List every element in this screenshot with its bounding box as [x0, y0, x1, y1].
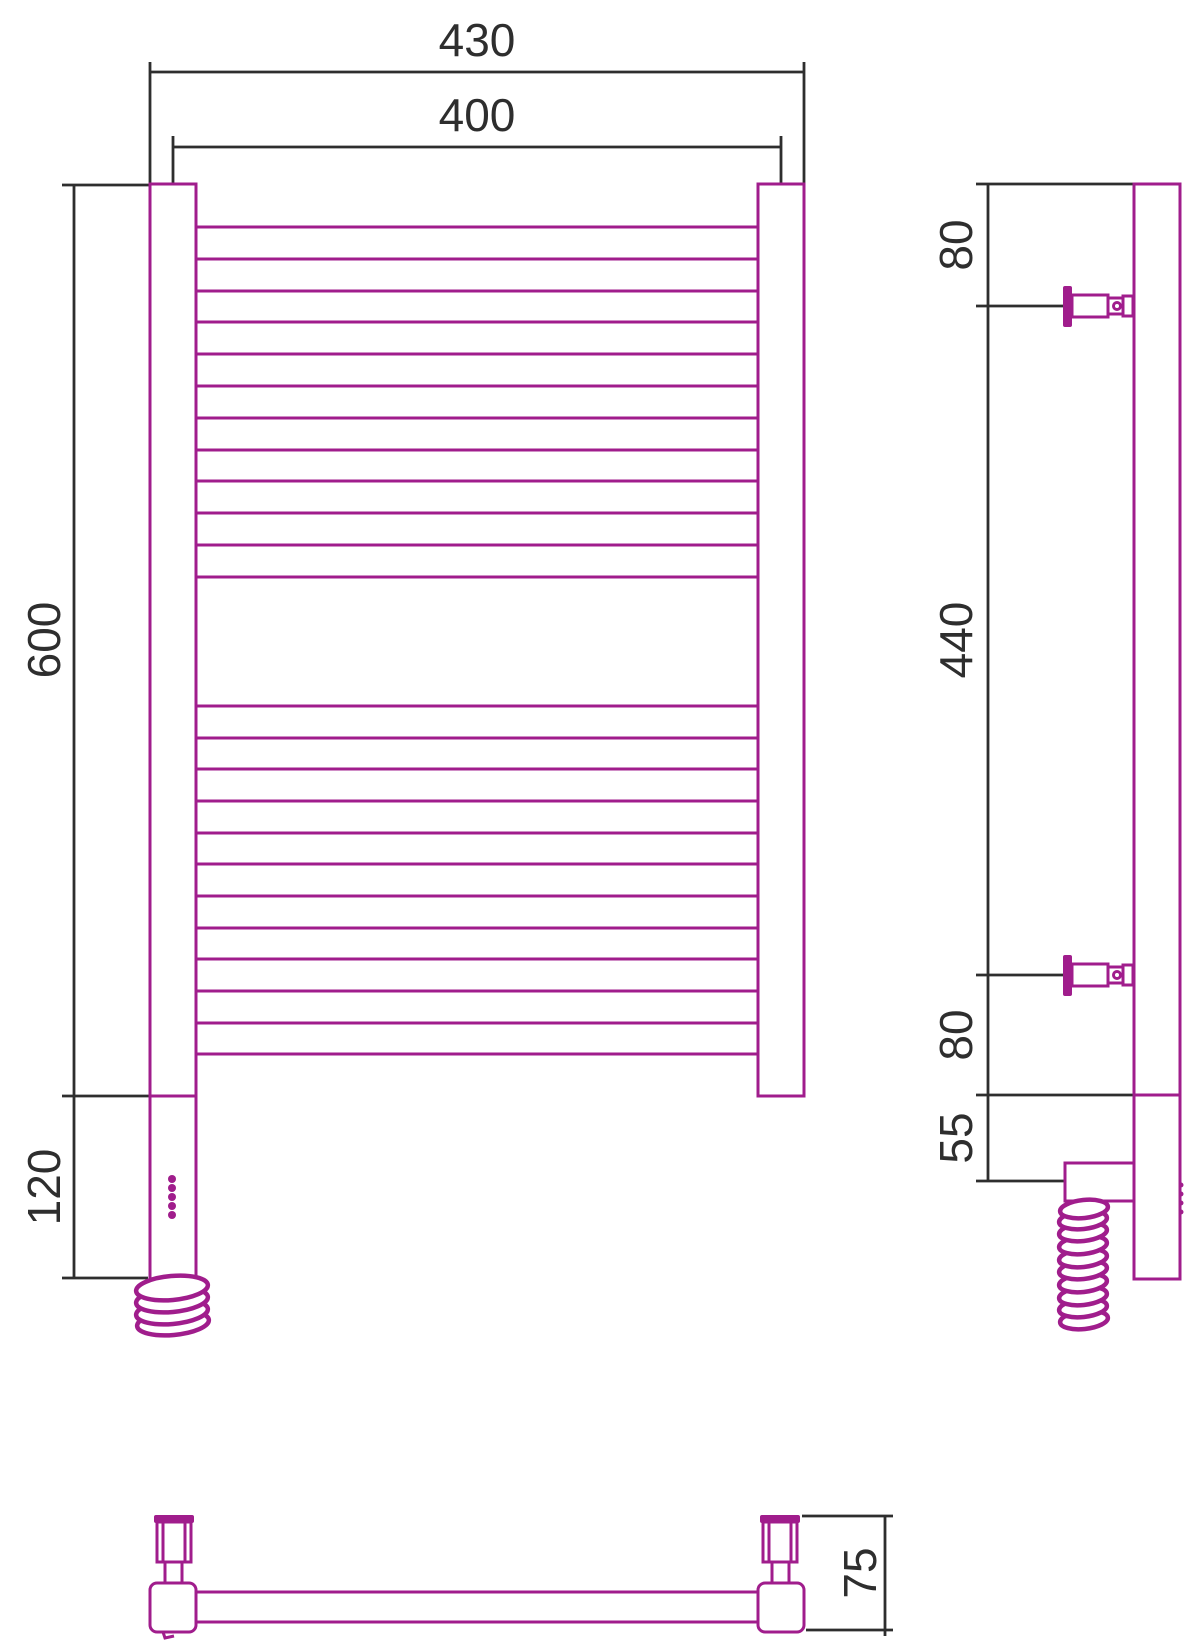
right-post — [758, 184, 804, 1096]
left-post — [150, 184, 196, 1279]
dim-label-120: 120 — [18, 1149, 70, 1226]
front-view — [135, 184, 804, 1338]
dim-label-55: 55 — [930, 1112, 982, 1163]
post-block — [150, 1583, 196, 1632]
dim-label-430: 430 — [439, 14, 516, 66]
mark — [1179, 1183, 1184, 1188]
power-indicator-dots — [168, 1175, 176, 1219]
dim-label-440: 440 — [930, 602, 982, 679]
mark — [1179, 1201, 1184, 1206]
towel-rail-technical-drawing: 430 400 600 120 — [0, 0, 1200, 1651]
dim-label-80-top: 80 — [930, 219, 982, 270]
dim-label-80-bottom: 80 — [930, 1009, 982, 1060]
bracket-body — [1072, 964, 1108, 986]
plan-bracket-right — [758, 1515, 804, 1632]
mark — [1179, 1192, 1184, 1197]
plan-bracket-left — [150, 1515, 196, 1638]
cable-coil-side — [1058, 1198, 1109, 1332]
dim-label-400: 400 — [439, 89, 516, 141]
dim-label-75: 75 — [834, 1547, 886, 1598]
bottom-view: 75 — [150, 1515, 893, 1638]
bracket-neck — [165, 1562, 182, 1583]
bracket-neck — [772, 1562, 789, 1583]
dot — [168, 1175, 176, 1183]
bottom-dim-depth: 75 — [802, 1516, 893, 1636]
front-dim-height: 600 120 — [18, 185, 150, 1278]
dot — [168, 1202, 176, 1210]
drawing-sheet: 430 400 600 120 — [0, 0, 1200, 1651]
mark — [1179, 1210, 1184, 1215]
cable-coil-front — [135, 1273, 210, 1338]
bracket-collar — [1123, 296, 1133, 316]
side-dims: 80 440 80 55 — [930, 184, 1134, 1181]
bracket-collar — [1123, 965, 1133, 985]
side-view — [1058, 184, 1183, 1331]
post-block — [758, 1583, 804, 1632]
dot — [168, 1184, 176, 1192]
dim-label-600: 600 — [18, 602, 70, 679]
heater-housing-side — [1065, 1163, 1134, 1201]
post-profile — [1134, 184, 1180, 1279]
dot — [168, 1193, 176, 1201]
wall-bracket-bottom — [1063, 955, 1133, 996]
front-dim-center-width: 400 — [173, 89, 781, 183]
wall-bracket-top — [1063, 286, 1133, 327]
dot — [168, 1211, 176, 1219]
rungs — [196, 227, 758, 1054]
bracket-body — [1072, 295, 1108, 317]
